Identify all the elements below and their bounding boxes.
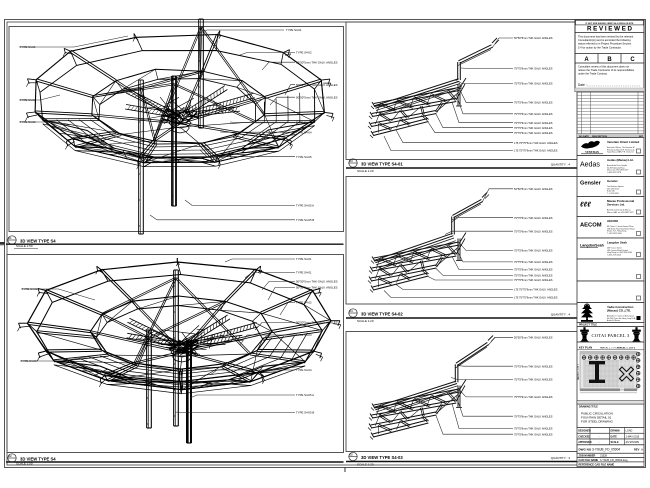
svg-text:TYPE S4-02: TYPE S4-02: [296, 301, 312, 305]
svg-text:R E V I E W E D: R E V I E W E D: [587, 26, 633, 33]
svg-text:QUANTITY : 4: QUANTITY : 4: [551, 313, 571, 317]
svg-text:A: A: [641, 448, 643, 452]
svg-text:DRAWING TITLE: DRAWING TITLE: [579, 406, 598, 409]
svg-text:SCALE 1:50: SCALE 1:50: [16, 244, 33, 248]
svg-text:75*75*6mm THK GALV. ANGLES: 75*75*6mm THK GALV. ANGLES: [514, 274, 553, 278]
svg-text:TYPE S4-03: TYPE S4-03: [296, 333, 312, 337]
svg-text:31528: 31528: [600, 455, 608, 458]
svg-text:REV: REV: [634, 448, 640, 452]
svg-text:Venetian Orient Limited: Venetian Orient Limited: [607, 140, 640, 144]
svg-text:LangdonSeah: LangdonSeah: [580, 244, 604, 248]
svg-text:50*50*5mm THK GALV. ANGLES: 50*50*5mm THK GALV. ANGLES: [296, 60, 338, 64]
svg-text:75*75*6mm THK GALV. ANGLES: 75*75*6mm THK GALV. ANGLES: [514, 278, 553, 282]
svg-text:L75 75*75*6mm THK GALV. ANGLES: L75 75*75*6mm THK GALV. ANGLES: [514, 296, 558, 300]
svg-text:IF NOT SIZE SHOWN, VERIFY ALL: IF NOT SIZE SHOWN, VERIFY ALL DWGS ON SI…: [586, 22, 634, 25]
svg-text:C: C: [630, 57, 635, 63]
svg-text:75*75*6mm THK GALV. ANGLES: 75*75*6mm THK GALV. ANGLES: [514, 427, 553, 431]
svg-text:TYPE S4-05 B: TYPE S4-05 B: [296, 218, 314, 222]
svg-text:75*75*6mm THK GALV. ANGLES: 75*75*6mm THK GALV. ANGLES: [514, 378, 553, 382]
svg-text:TYPE S4-03: TYPE S4-03: [296, 121, 312, 125]
svg-text:TYPE S4-05 B: TYPE S4-05 B: [296, 411, 314, 415]
svg-text:JOB NUMBER: JOB NUMBER: [579, 455, 596, 458]
svg-text:AECOM: AECOM: [607, 219, 618, 223]
svg-text:DRAWN: DRAWN: [611, 430, 620, 433]
svg-text:TYPE S4-03: TYPE S4-03: [21, 359, 37, 363]
svg-text:75*75*6mm THK GALV. ANGLES: 75*75*6mm THK GALV. ANGLES: [514, 395, 553, 399]
svg-text:L75 75*75*6mm THK GALV. ANGLES: L75 75*75*6mm THK GALV. ANGLES: [514, 288, 558, 292]
svg-text:T +1 510 9999: T +1 510 9999: [607, 193, 619, 195]
svg-text:Gensler: Gensler: [580, 181, 602, 187]
svg-text:03: 03: [349, 159, 353, 163]
svg-text:3-YSUB_FD_05004: 3-YSUB_FD_05004: [592, 448, 620, 452]
svg-text:Consultant(s)(s) and is accord: Consultant(s)(s) and is accorded the fol…: [578, 38, 631, 42]
svg-text:Gensler: Gensler: [607, 179, 619, 183]
svg-text:75*75*6mm THK GALV. ANGLES: 75*75*6mm THK GALV. ANGLES: [514, 260, 553, 264]
svg-text:TYPE S4-05: TYPE S4-05: [296, 155, 312, 159]
svg-text:SCALE: SCALE: [611, 441, 620, 444]
svg-text:SCALE 1:20: SCALE 1:20: [357, 319, 374, 323]
svg-text:75*75*6mm THK GALV. ANGLES: 75*75*6mm THK GALV. ANGLES: [514, 364, 553, 368]
svg-text:SCALE 1:20: SCALE 1:20: [357, 462, 374, 466]
svg-text:Aedas: Aedas: [580, 162, 600, 169]
svg-text:Taipa Macau SAR, P.R. China: Taipa Macau SAR, P.R. China tel: [607, 151, 634, 154]
svg-text:TYPE S4-01: TYPE S4-01: [296, 257, 312, 261]
svg-text:L75 75*75*6mm THK GALV. ANGLES: L75 75*75*6mm THK GALV. ANGLES: [514, 141, 558, 145]
svg-text:TYPE S4-02: TYPE S4-02: [296, 51, 312, 55]
svg-text:A: A: [584, 57, 589, 63]
svg-text:QUANTITY : 4: QUANTITY : 4: [551, 456, 571, 460]
svg-text:ℓℓℓ: ℓℓℓ: [579, 202, 591, 209]
svg-text:75*75*6mm THK GALV. ANGLES: 75*75*6mm THK GALV. ANGLES: [514, 131, 553, 135]
svg-text:50*50*5mm THK GALV. ANGLES: 50*50*5mm THK GALV. ANGLES: [296, 83, 338, 87]
svg-text:VENETIAN: VENETIAN: [585, 151, 599, 154]
svg-text:status referred to in Project: status referred to in Project Procedure …: [578, 42, 632, 46]
svg-text:DWG NO: DWG NO: [579, 448, 592, 452]
svg-text:AECOM: AECOM: [580, 223, 602, 229]
svg-text:75*75*6mm THK GALV. ANGLES: 75*75*6mm THK GALV. ANGLES: [514, 268, 553, 272]
svg-text:75*75*6mm THK GALV. ANGLES: 75*75*6mm THK GALV. ANGLES: [514, 414, 553, 418]
svg-text:50*50*5mm THK GALV. ANGLES: 50*50*5mm THK GALV. ANGLES: [296, 321, 338, 325]
svg-text:REFERENCE CAD FILE NAME: REFERENCE CAD FILE NAME: [579, 463, 615, 466]
svg-text:75*75*6mm THK GALV. ANGLES: 75*75*6mm THK GALV. ANGLES: [514, 216, 553, 220]
svg-text:50*50*5mm THK GALV. ANGLES: 50*50*5mm THK GALV. ANGLES: [514, 335, 553, 339]
svg-text:Date :: Date :: [578, 83, 587, 87]
svg-text:TYPE S4-01: TYPE S4-01: [20, 45, 36, 49]
svg-text:75*75*6mm THK GALV. ANGLES: 75*75*6mm THK GALV. ANGLES: [514, 82, 553, 86]
svg-text:75*75*6mm THK GALV. ANGLES: 75*75*6mm THK GALV. ANGLES: [514, 229, 553, 233]
svg-text:under the Trade Contract.: under the Trade Contract.: [578, 72, 608, 76]
svg-text:50*50*5mm THK GALV. ANGLES: 50*50*5mm THK GALV. ANGLES: [514, 187, 553, 191]
svg-text:Services Ltd.: Services Ltd.: [607, 203, 625, 207]
svg-text:APPROVED: APPROVED: [578, 441, 592, 444]
svg-text:FOR STEEL DRAWING: FOR STEEL DRAWING: [581, 420, 613, 424]
svg-text:SCALE 1:50: SCALE 1:50: [16, 462, 33, 466]
svg-text:T +852 3922 9000: T +852 3922 9000: [607, 233, 622, 235]
svg-text:1-MAY-2015: 1-MAY-2015: [626, 436, 640, 439]
svg-text:PARCEL 1, LOT 1: PARCEL 1, LOT 1: [577, 363, 580, 380]
svg-text:02: 02: [8, 454, 12, 458]
svg-text:50*50*5mm THK GALV. ANGLES: 50*50*5mm THK GALV. ANGLES: [296, 95, 338, 99]
svg-text:DESIGNED: DESIGNED: [578, 430, 591, 433]
svg-text:AS SHOWN: AS SHOWN: [626, 441, 640, 444]
svg-text:75*75*6mm THK GALV. ANGLES: 75*75*6mm THK GALV. ANGLES: [514, 67, 553, 71]
svg-text:04: 04: [349, 309, 353, 313]
svg-text:TYPE S4-04: TYPE S4-04: [296, 130, 312, 134]
svg-text:50*50*5mm THK GALV. ANGLES: 50*50*5mm THK GALV. ANGLES: [514, 36, 553, 40]
svg-text:01: 01: [8, 236, 12, 240]
svg-text:CHECKED: CHECKED: [578, 436, 590, 439]
svg-text:TYPE S4-02: TYPE S4-02: [20, 98, 36, 102]
svg-text:05: 05: [349, 453, 353, 457]
svg-text:TYPE S4-04: TYPE S4-04: [296, 368, 312, 372]
svg-text:75*75*6mm THK GALV. ANGLES: 75*75*6mm THK GALV. ANGLES: [514, 432, 553, 436]
svg-text:3D VIEW TYPE S4-01: 3D VIEW TYPE S4-01: [361, 162, 403, 167]
svg-text:KEY PLAN: KEY PLAN: [579, 346, 592, 350]
svg-text:50*50*5mm THK GALV. ANGLES: 50*50*5mm THK GALV. ANGLES: [296, 286, 338, 290]
svg-text:3D VIEW TYPE S4-03: 3D VIEW TYPE S4-03: [361, 455, 403, 460]
svg-text:PARCEL 1, LOT 2: PARCEL 1, LOT 2: [600, 347, 618, 350]
svg-text:COTAI PARCEL 3: COTAI PARCEL 3: [591, 333, 630, 338]
svg-text:f +852 2576 0416: f +852 2576 0416: [607, 254, 621, 256]
svg-text:Macau, SAR, tel +853 2837 5671: Macau, SAR, tel +853 2837 5671: [607, 211, 634, 214]
svg-text:(Macau) CO.,LTD.: (Macau) CO.,LTD.: [607, 309, 631, 313]
svg-text:TYPE S4-05 A: TYPE S4-05 A: [296, 393, 314, 397]
svg-text:75*75*6mm THK GALV. ANGLES: 75*75*6mm THK GALV. ANGLES: [514, 100, 553, 104]
svg-text:relieve the Trade Contractor o: relieve the Trade Contractor of its resp…: [578, 68, 635, 72]
svg-text:50*50*5mm THK GALV. ANGLES: 50*50*5mm THK GALV. ANGLES: [296, 280, 338, 284]
svg-text:L75 75*75*6mm THK GALV. ANGLES: L75 75*75*6mm THK GALV. ANGLES: [514, 149, 558, 153]
svg-text:PARCEL 1, LOT 2: PARCEL 1, LOT 2: [617, 347, 636, 350]
svg-text:3-YSUB_FD_05004.dwg: 3-YSUB_FD_05004.dwg: [600, 459, 628, 462]
svg-text:75*75*6mm THK GALV. ANGLES: 75*75*6mm THK GALV. ANGLES: [514, 112, 553, 116]
svg-text:TYPE S4-02: TYPE S4-02: [22, 287, 38, 291]
svg-text:TYPE S4-01: TYPE S4-01: [296, 271, 312, 275]
svg-text:5.4 for action by the Trade Co: 5.4 for action by the Trade Contractor.: [578, 45, 622, 49]
svg-text:Langdon Seah: Langdon Seah: [607, 241, 627, 245]
svg-text:LOAD: LOAD: [626, 430, 633, 433]
svg-text:QUANTITY : 4: QUANTITY : 4: [551, 163, 571, 167]
svg-text:Consultant review of this docu: Consultant review of this document does …: [578, 65, 629, 69]
svg-text:DATE: DATE: [611, 436, 618, 439]
svg-text:TYPE S4-01: TYPE S4-01: [286, 28, 302, 32]
svg-text:SCALE 1:20: SCALE 1:20: [357, 169, 374, 173]
svg-text:TYPE S4-02: TYPE S4-02: [20, 120, 36, 124]
svg-text:Aedas (Macau) Ltd.: Aedas (Macau) Ltd.: [607, 158, 634, 162]
svg-text:f +853 2872 2378: f +853 2872 2378: [607, 172, 621, 174]
svg-text:75*75*6mm THK GALV. ANGLES: 75*75*6mm THK GALV. ANGLES: [514, 249, 553, 253]
svg-text:TYPE S4-05 A: TYPE S4-05 A: [296, 204, 314, 208]
svg-text:75*75*6mm THK GALV. ANGLES: 75*75*6mm THK GALV. ANGLES: [514, 126, 553, 130]
svg-text:3D VIEW TYPE S4-02: 3D VIEW TYPE S4-02: [361, 312, 403, 317]
svg-text:This document has been revised: This document has been revised by the re…: [578, 35, 634, 39]
svg-text:75*75*6mm THK GALV. ANGLES: 75*75*6mm THK GALV. ANGLES: [514, 121, 553, 125]
svg-text:B: B: [607, 57, 612, 63]
svg-text:3D VIEW TYPE S4: 3D VIEW TYPE S4: [20, 239, 56, 244]
svg-text:CAD FILE NAME: CAD FILE NAME: [579, 459, 599, 462]
